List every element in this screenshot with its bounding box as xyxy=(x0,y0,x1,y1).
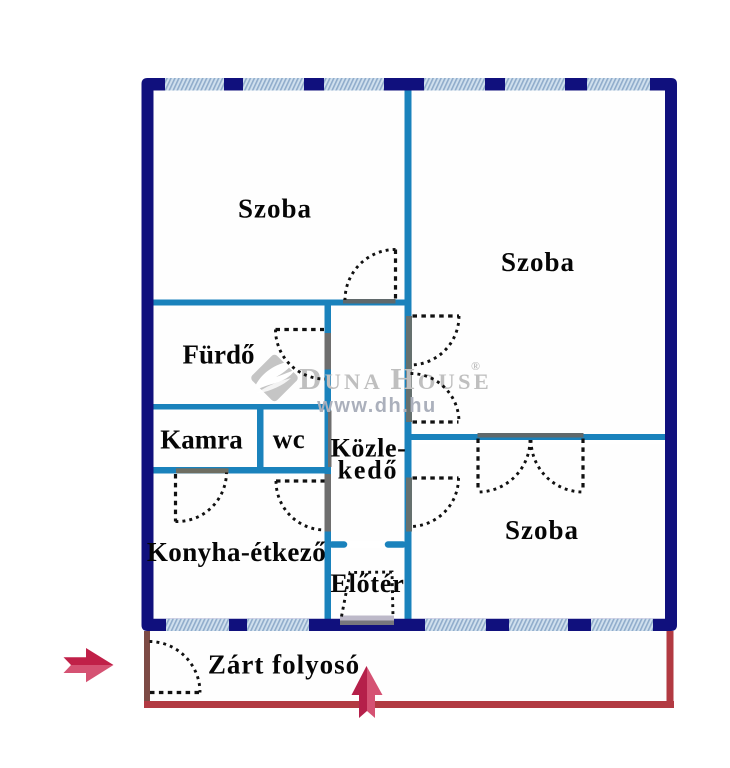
svg-text:Zárt folyosó: Zárt folyosó xyxy=(208,650,360,680)
svg-text:Előtér: Előtér xyxy=(330,569,404,598)
svg-text:kedő: kedő xyxy=(338,456,399,485)
svg-text:Szoba: Szoba xyxy=(501,247,575,277)
svg-text:®: ® xyxy=(471,359,480,373)
svg-text:wc: wc xyxy=(273,424,305,454)
svg-text:Szoba: Szoba xyxy=(505,515,579,545)
svg-text:Konyha-étkező: Konyha-étkező xyxy=(147,537,326,567)
svg-text:www.dh.hu: www.dh.hu xyxy=(316,395,436,417)
svg-text:Kamra: Kamra xyxy=(160,425,243,455)
svg-text:Szoba: Szoba xyxy=(238,194,312,224)
svg-text:Fürdő: Fürdő xyxy=(182,340,254,370)
